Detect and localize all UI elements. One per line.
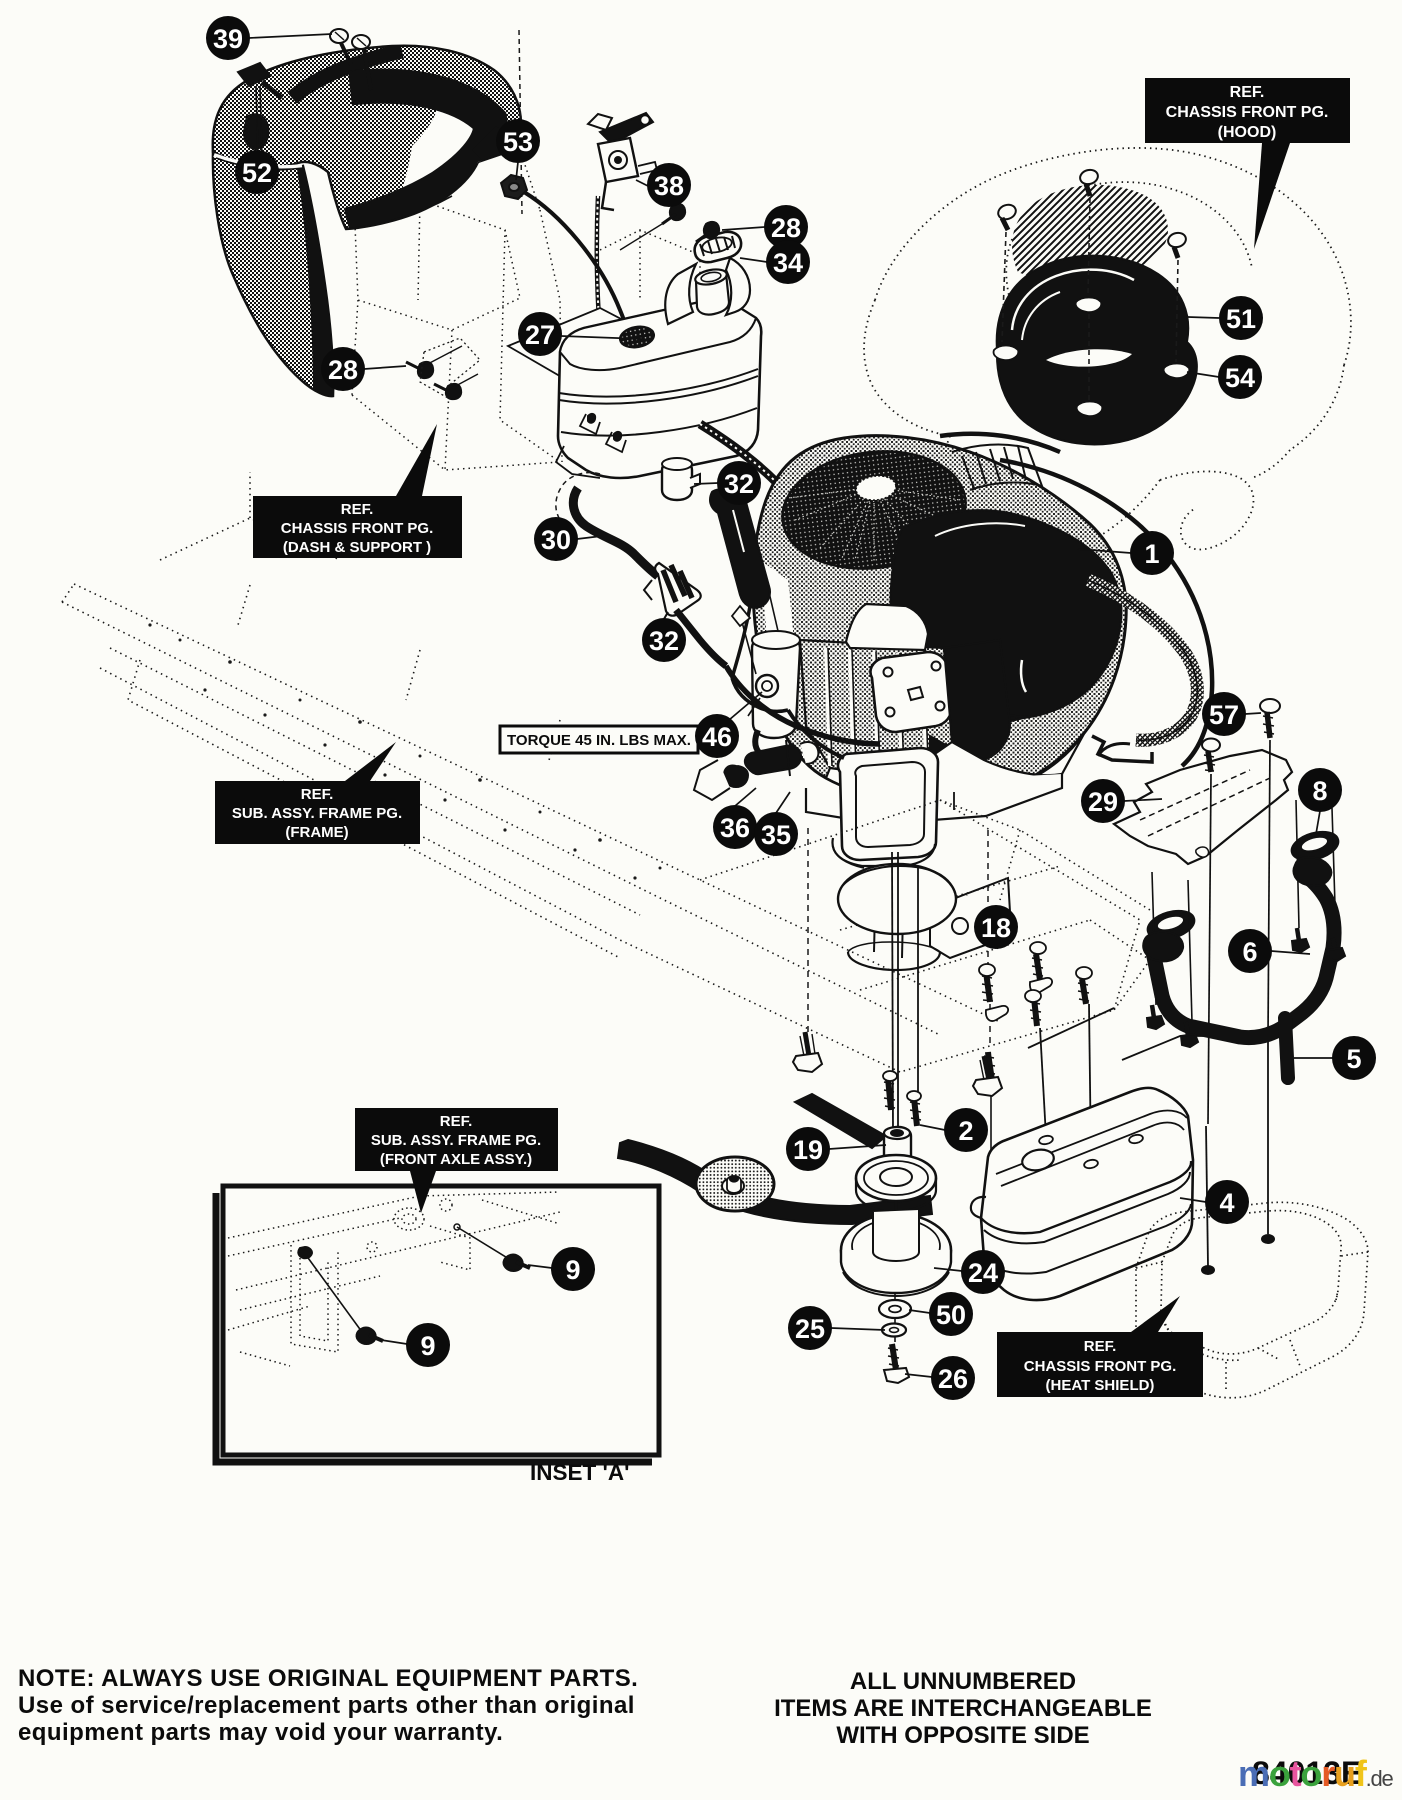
- svg-text:(DASH & SUPPORT ): (DASH & SUPPORT ): [283, 539, 431, 556]
- svg-text:38: 38: [654, 171, 684, 201]
- svg-text:35: 35: [761, 820, 791, 850]
- svg-text:8: 8: [1312, 776, 1327, 806]
- svg-text:29: 29: [1088, 787, 1118, 817]
- svg-text:(HEAT SHIELD): (HEAT SHIELD): [1046, 1377, 1155, 1394]
- svg-text:SUB. ASSY. FRAME PG.: SUB. ASSY. FRAME PG.: [371, 1132, 541, 1149]
- svg-text:54: 54: [1225, 363, 1255, 393]
- svg-text:19: 19: [793, 1135, 823, 1165]
- svg-text:24: 24: [968, 1258, 998, 1288]
- svg-text:ALL UNNUMBERED: ALL UNNUMBERED: [850, 1668, 1076, 1695]
- svg-text:REF.: REF.: [440, 1113, 473, 1130]
- svg-text:28: 28: [771, 213, 801, 243]
- svg-text:50: 50: [936, 1300, 966, 1330]
- svg-text:REF.: REF.: [1230, 84, 1265, 101]
- svg-text:34: 34: [773, 248, 803, 278]
- svg-text:9: 9: [420, 1331, 435, 1361]
- svg-text:(HOOD): (HOOD): [1218, 124, 1277, 141]
- svg-text:53: 53: [503, 127, 533, 157]
- svg-text:(FRAME): (FRAME): [285, 824, 348, 841]
- svg-text:REF.: REF.: [1084, 1338, 1117, 1355]
- svg-text:INSET 'A': INSET 'A': [530, 1460, 629, 1485]
- svg-text:(FRONT AXLE ASSY.): (FRONT AXLE ASSY.): [380, 1151, 532, 1168]
- svg-text:4: 4: [1219, 1188, 1234, 1218]
- svg-text:32: 32: [649, 626, 679, 656]
- svg-text:6: 6: [1242, 937, 1257, 967]
- svg-text:TORQUE 45 IN. LBS MAX.: TORQUE 45 IN. LBS MAX.: [507, 732, 691, 749]
- svg-text:1: 1: [1144, 539, 1159, 569]
- svg-text:25: 25: [795, 1314, 825, 1344]
- svg-text:5: 5: [1346, 1044, 1361, 1074]
- svg-text:Use of service/replacement par: Use of service/replacement parts other t…: [18, 1692, 635, 1719]
- svg-text:NOTE: ALWAYS USE ORIGINAL EQUI: NOTE: ALWAYS USE ORIGINAL EQUIPMENT PART…: [18, 1665, 638, 1692]
- svg-text:39: 39: [213, 24, 243, 54]
- svg-text:28: 28: [328, 355, 358, 385]
- svg-text:CHASSIS FRONT PG.: CHASSIS FRONT PG.: [1166, 104, 1329, 121]
- svg-text:51: 51: [1226, 304, 1256, 334]
- svg-text:CHASSIS FRONT PG.: CHASSIS FRONT PG.: [281, 520, 434, 537]
- svg-text:ITEMS ARE INTERCHANGEABLE: ITEMS ARE INTERCHANGEABLE: [774, 1695, 1152, 1722]
- svg-text:9: 9: [565, 1255, 580, 1285]
- svg-text:57: 57: [1209, 700, 1239, 730]
- svg-text:32: 32: [724, 469, 754, 499]
- svg-text:SUB. ASSY. FRAME PG.: SUB. ASSY. FRAME PG.: [232, 805, 402, 822]
- svg-text:REF.: REF.: [341, 501, 374, 518]
- svg-text:52: 52: [242, 158, 272, 188]
- svg-text:26: 26: [938, 1364, 968, 1394]
- svg-text:36: 36: [720, 813, 750, 843]
- svg-text:18: 18: [981, 913, 1011, 943]
- svg-text:46: 46: [702, 722, 732, 752]
- svg-text:27: 27: [525, 320, 555, 350]
- svg-text:equipment parts may void your: equipment parts may void your warranty.: [18, 1719, 503, 1746]
- svg-text:CHASSIS FRONT PG.: CHASSIS FRONT PG.: [1024, 1358, 1177, 1375]
- svg-text:REF.: REF.: [301, 786, 334, 803]
- svg-text:30: 30: [541, 525, 571, 555]
- svg-text:WITH OPPOSITE SIDE: WITH OPPOSITE SIDE: [836, 1722, 1089, 1749]
- svg-text:2: 2: [958, 1116, 973, 1146]
